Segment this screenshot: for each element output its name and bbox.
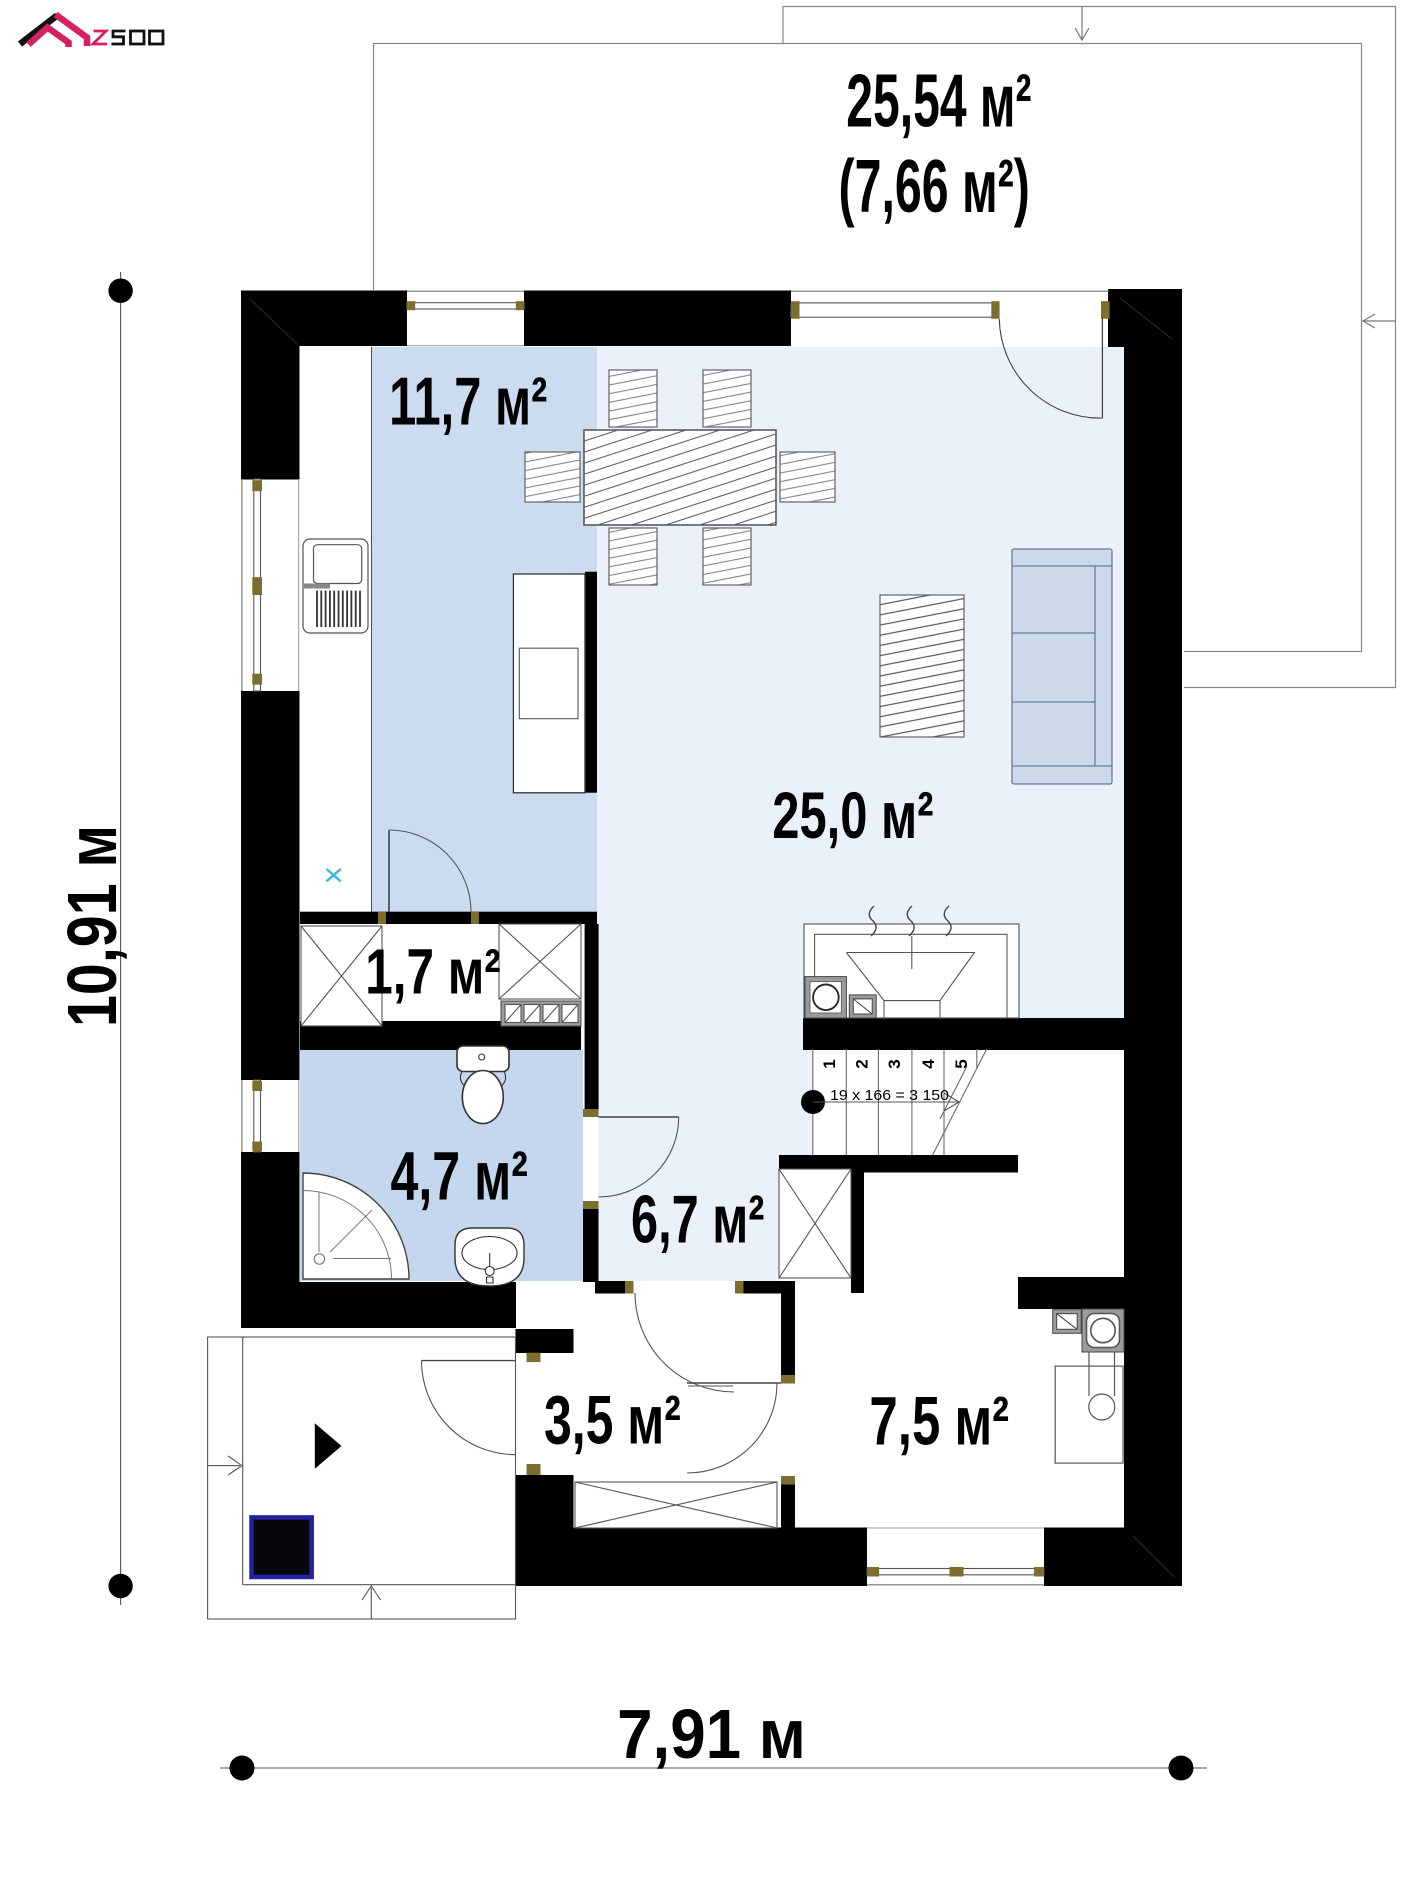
svg-text:7,91 м: 7,91 м: [617, 1695, 806, 1773]
svg-text:19 x 166 = 3 150: 19 x 166 = 3 150: [830, 1087, 949, 1104]
svg-text:3: 3: [885, 1059, 904, 1068]
svg-text:5: 5: [952, 1059, 971, 1068]
svg-text:7,5 м²: 7,5 м²: [869, 1382, 1009, 1459]
svg-text:4: 4: [919, 1059, 938, 1069]
svg-text:25,54 м²: 25,54 м²: [846, 60, 1031, 143]
svg-text:1,7 м²: 1,7 м²: [365, 937, 501, 1009]
svg-text:4,7 м²: 4,7 м²: [390, 1136, 527, 1214]
svg-text:6,7 м²: 6,7 м²: [631, 1181, 764, 1258]
svg-text:(7,66 м²): (7,66 м²): [839, 146, 1030, 229]
svg-text:11,7 м²: 11,7 м²: [389, 363, 547, 440]
svg-text:3,5 м²: 3,5 м²: [544, 1380, 681, 1458]
svg-text:1: 1: [820, 1059, 839, 1068]
svg-text:2: 2: [853, 1059, 872, 1068]
svg-text:10,91 м: 10,91 м: [53, 825, 132, 1027]
svg-text:25,0 м²: 25,0 м²: [772, 779, 933, 853]
